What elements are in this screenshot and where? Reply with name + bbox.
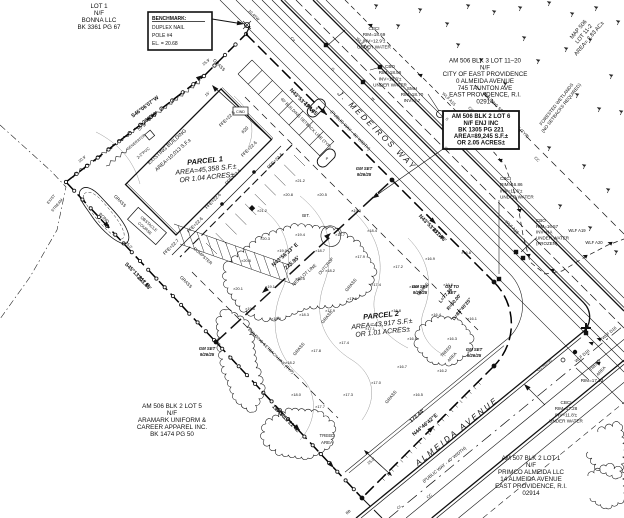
svg-text:×17.0: ×17.0 <box>371 380 382 385</box>
svg-text:×17.4: ×17.4 <box>339 340 350 345</box>
svg-text:CBO: CBO <box>536 218 546 223</box>
svg-text:GM SET: GM SET <box>466 347 483 352</box>
svg-text:BONNA LLC: BONNA LLC <box>82 17 117 24</box>
svg-text:×16.4: ×16.4 <box>431 312 442 317</box>
svg-text:×18.2: ×18.2 <box>285 360 295 365</box>
svg-text:INV=13.3'±: INV=13.3'± <box>379 76 402 81</box>
svg-text:02914: 02914 <box>522 490 540 497</box>
svg-text:TREED: TREED <box>320 433 335 438</box>
svg-text:×17.8: ×17.8 <box>311 348 321 353</box>
svg-text:×21.2: ×21.2 <box>257 208 267 213</box>
svg-text:BK 3361 PG 67: BK 3361 PG 67 <box>78 24 122 31</box>
svg-text:×18.4: ×18.4 <box>367 228 378 233</box>
svg-text:×21.2: ×21.2 <box>295 178 305 183</box>
svg-text:UNDER WATER: UNDER WATER <box>536 235 570 240</box>
svg-text:×16.9: ×16.9 <box>409 284 419 289</box>
svg-text:×19.1: ×19.1 <box>265 284 275 289</box>
svg-text:CBCI: CBCI <box>561 400 572 405</box>
svg-text:N/F ENJ INC: N/F ENJ INC <box>463 121 499 127</box>
svg-text:×19.3: ×19.3 <box>351 208 361 213</box>
svg-text:×17.1: ×17.1 <box>365 326 375 331</box>
svg-text:×18.7: ×18.7 <box>335 232 345 237</box>
svg-text:14 ALMEIDA AVENUE: 14 ALMEIDA AVENUE <box>500 476 561 483</box>
svg-text:N/F: N/F <box>526 462 536 469</box>
svg-text:LOT 1: LOT 1 <box>90 3 108 10</box>
svg-text:AREA: AREA <box>321 440 333 445</box>
svg-text:UNDER WATER: UNDER WATER <box>357 45 391 50</box>
svg-text:UNDER WATER: UNDER WATER <box>549 419 583 424</box>
svg-text:×16.9: ×16.9 <box>425 256 435 261</box>
svg-text:×19.0: ×19.0 <box>277 248 288 253</box>
svg-text:ARAMARK UNIFORM &: ARAMARK UNIFORM & <box>138 417 207 424</box>
svg-text:WLF A20: WLF A20 <box>585 240 603 245</box>
svg-text:×16.5: ×16.5 <box>413 392 423 397</box>
svg-text:×16.8: ×16.8 <box>391 308 401 313</box>
svg-text:×19.4: ×19.4 <box>295 232 306 237</box>
svg-text:BENCHMARK:: BENCHMARK: <box>152 16 187 22</box>
svg-text:BIT.: BIT. <box>302 213 310 218</box>
svg-text:INV=12.9'±: INV=12.9'± <box>363 38 386 43</box>
svg-text:CBCI: CBCI <box>369 26 380 31</box>
svg-text:WLF A19: WLF A19 <box>568 228 586 233</box>
svg-text:×16.6: ×16.6 <box>443 282 453 287</box>
svg-text:AM 507 BLK 2 LOT 1: AM 507 BLK 2 LOT 1 <box>502 455 561 462</box>
svg-text:×17.6: ×17.6 <box>347 296 357 301</box>
svg-text:(FROZEN): (FROZEN) <box>536 241 558 246</box>
svg-text:INV=NA: INV=NA <box>536 230 552 235</box>
svg-text:POLE #4: POLE #4 <box>152 33 173 39</box>
svg-text:N/F: N/F <box>167 410 177 417</box>
svg-text:N/F: N/F <box>94 10 104 17</box>
svg-text:CBO: CBO <box>385 64 395 69</box>
svg-text:EAST PROVIDENCE, R.I.: EAST PROVIDENCE, R.I. <box>495 483 567 490</box>
svg-text:RIM=16.57: RIM=16.57 <box>536 224 559 229</box>
svg-text:×16.1: ×16.1 <box>467 316 477 321</box>
svg-text:×16.3: ×16.3 <box>447 336 457 341</box>
svg-text:×17.9: ×17.9 <box>325 308 335 313</box>
svg-text:×20.3: ×20.3 <box>260 236 270 241</box>
svg-text:9/26/25: 9/26/25 <box>413 290 428 295</box>
svg-text:RIM=18.69: RIM=18.69 <box>363 32 386 37</box>
svg-text:9/26/25: 9/26/25 <box>357 172 372 177</box>
svg-text:RIM=17.28: RIM=17.28 <box>555 406 578 411</box>
svg-text:×16.2: ×16.2 <box>437 368 447 373</box>
svg-text:×18.5: ×18.5 <box>295 276 305 281</box>
svg-text:AREA=89,245 S.F.±: AREA=89,245 S.F.± <box>454 134 509 140</box>
svg-text:02914: 02914 <box>476 98 494 105</box>
svg-text:×16.8: ×16.8 <box>461 250 471 255</box>
svg-text:×17.2: ×17.2 <box>393 264 403 269</box>
svg-text:INV=2.7: INV=2.7 <box>404 98 421 103</box>
svg-text:AM 506 BLK 2 LOT 5: AM 506 BLK 2 LOT 5 <box>142 403 202 410</box>
svg-text:SET: SET <box>448 290 457 295</box>
svg-text:P: P <box>326 156 329 161</box>
svg-text:INV=11.6'±: INV=11.6'± <box>500 188 523 193</box>
svg-text:UNDER WATER: UNDER WATER <box>373 83 407 88</box>
svg-text:BK 1305 PG 221: BK 1305 PG 221 <box>458 127 504 133</box>
svg-text:CBCI: CBCI <box>500 176 511 181</box>
svg-text:RIM=18.56: RIM=18.56 <box>379 70 402 75</box>
svg-text:UNDER WATER: UNDER WATER <box>500 195 534 200</box>
svg-text:AM 506 BLK 2 LOT 6: AM 506 BLK 2 LOT 6 <box>452 114 511 120</box>
svg-text:×20.1: ×20.1 <box>233 286 243 291</box>
svg-text:×20.8: ×20.8 <box>283 192 293 197</box>
svg-text:×18.9: ×18.9 <box>271 316 281 321</box>
svg-text:×18.0: ×18.0 <box>291 392 302 397</box>
svg-text:GM SET: GM SET <box>199 346 216 351</box>
svg-text:RIM=17.13: RIM=17.13 <box>581 378 604 383</box>
svg-text:PRIMCO ALMEIDA LLC: PRIMCO ALMEIDA LLC <box>498 469 565 476</box>
svg-text:INV=11.8'±: INV=11.8'± <box>555 412 578 417</box>
svg-text:×18.2: ×18.2 <box>325 268 335 273</box>
svg-text:×17.4: ×17.4 <box>371 282 382 287</box>
svg-text:×17.3: ×17.3 <box>343 392 353 397</box>
svg-text:9/26/25: 9/26/25 <box>200 352 215 357</box>
svg-text:×18.3: ×18.3 <box>299 312 309 317</box>
svg-text:RIM=16.86: RIM=16.86 <box>500 182 523 187</box>
svg-text:×16.6: ×16.6 <box>407 336 417 341</box>
svg-text:DUPLEX NAIL: DUPLEX NAIL <box>152 25 185 31</box>
svg-text:×20.5: ×20.5 <box>317 192 327 197</box>
svg-text:CIND: CIND <box>236 110 245 114</box>
svg-text:×18.7: ×18.7 <box>315 248 325 253</box>
svg-text:9/26/25: 9/26/25 <box>467 353 482 358</box>
svg-text:×17.7: ×17.7 <box>315 404 325 409</box>
svg-text:×20.6: ×20.6 <box>241 258 251 263</box>
svg-text:×17.9: ×17.9 <box>355 254 365 259</box>
svg-text:×16.7: ×16.7 <box>397 364 407 369</box>
svg-text:EL. = 20.68: EL. = 20.68 <box>152 41 178 47</box>
svg-text:BK 1474 PG 50: BK 1474 PG 50 <box>150 431 194 438</box>
svg-text:OR 2.05 ACRES±: OR 2.05 ACRES± <box>457 141 506 147</box>
svg-text:RIM=18.70: RIM=18.70 <box>401 92 424 97</box>
svg-text:GM SET: GM SET <box>356 166 373 171</box>
svg-text:SMH: SMH <box>407 86 417 91</box>
svg-text:CAREER APPAREL INC.: CAREER APPAREL INC. <box>137 424 208 431</box>
svg-text:×19.6: ×19.6 <box>245 306 255 311</box>
